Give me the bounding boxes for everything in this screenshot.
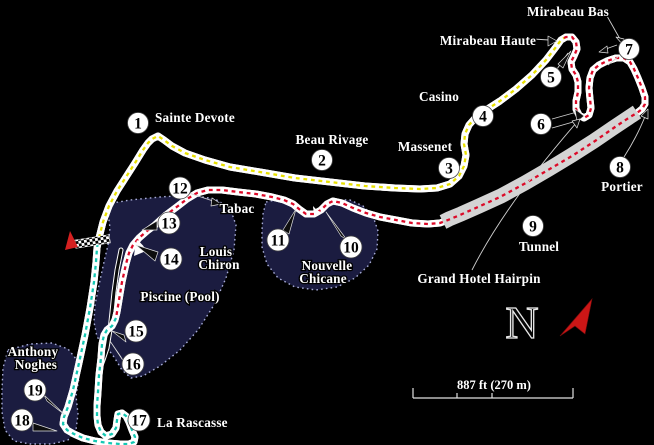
- turn-marker-10: 10: [340, 236, 362, 258]
- svg-text:2: 2: [318, 153, 326, 170]
- turn-marker-5: 5: [541, 67, 562, 88]
- turn-marker-2: 2: [312, 150, 333, 171]
- svg-text:16: 16: [125, 357, 141, 374]
- turn-marker-19: 19: [24, 379, 46, 401]
- turn-marker-11: 11: [267, 229, 289, 251]
- circuit-svg: Sainte Devote Beau Rivage Massenet Casin…: [0, 0, 654, 445]
- label-nouvelle-line2: Chicane: [299, 271, 347, 286]
- label-grand-hotel-hairpin: Grand Hotel Hairpin: [417, 271, 541, 286]
- label-massenet: Massenet: [398, 139, 453, 154]
- svg-text:13: 13: [161, 216, 177, 233]
- svg-text:7: 7: [625, 42, 633, 59]
- turn-marker-12: 12: [169, 177, 191, 199]
- turn-marker-6: 6: [531, 114, 552, 135]
- label-casino: Casino: [419, 89, 459, 104]
- label-anthony-line2: Noghes: [15, 357, 57, 372]
- label-beau-rivage: Beau Rivage: [296, 132, 369, 147]
- scale-bar-label: 887 ft (270 m): [457, 378, 531, 392]
- svg-text:9: 9: [529, 219, 537, 236]
- label-mirabeau-haute: Mirabeau Haute: [440, 33, 536, 48]
- svg-text:10: 10: [343, 240, 359, 257]
- svg-text:8: 8: [616, 160, 624, 177]
- turn-marker-9: 9: [523, 216, 544, 237]
- label-piscine: Piscine (Pool): [140, 289, 219, 304]
- turn-marker-14: 14: [160, 248, 182, 270]
- svg-text:15: 15: [128, 324, 144, 341]
- svg-text:6: 6: [537, 117, 545, 134]
- turn-marker-3: 3: [439, 158, 460, 179]
- turn-marker-13: 13: [158, 212, 180, 234]
- label-mirabeau-bas: Mirabeau Bas: [527, 4, 609, 19]
- label-sainte-devote: Sainte Devote: [155, 110, 235, 125]
- svg-text:14: 14: [163, 252, 179, 269]
- svg-text:3: 3: [445, 161, 453, 178]
- label-la-rascasse: La Rascasse: [157, 415, 228, 430]
- svg-text:5: 5: [547, 70, 555, 87]
- label-tabac: Tabac: [220, 201, 255, 216]
- label-portier: Portier: [601, 179, 643, 194]
- svg-text:4: 4: [479, 109, 487, 126]
- svg-text:1: 1: [134, 116, 142, 133]
- svg-text:11: 11: [271, 233, 286, 250]
- turn-marker-1: 1: [128, 113, 149, 134]
- turn-marker-4: 4: [473, 106, 494, 127]
- turn-marker-7: 7: [619, 39, 640, 60]
- turn-marker-15: 15: [125, 320, 147, 342]
- turn-marker-16: 16: [122, 353, 144, 375]
- turn-marker-17: 17: [128, 409, 150, 431]
- svg-text:18: 18: [14, 413, 30, 430]
- svg-text:12: 12: [172, 181, 188, 198]
- label-tunnel: Tunnel: [519, 239, 559, 254]
- svg-text:19: 19: [27, 383, 43, 400]
- turn-marker-18: 18: [11, 409, 33, 431]
- svg-text:17: 17: [131, 413, 147, 430]
- north-letter: N: [505, 297, 538, 348]
- monaco-circuit-map: Sainte Devote Beau Rivage Massenet Casin…: [0, 0, 654, 445]
- turn-marker-8: 8: [610, 157, 631, 178]
- label-louis-line2: Chiron: [198, 257, 240, 272]
